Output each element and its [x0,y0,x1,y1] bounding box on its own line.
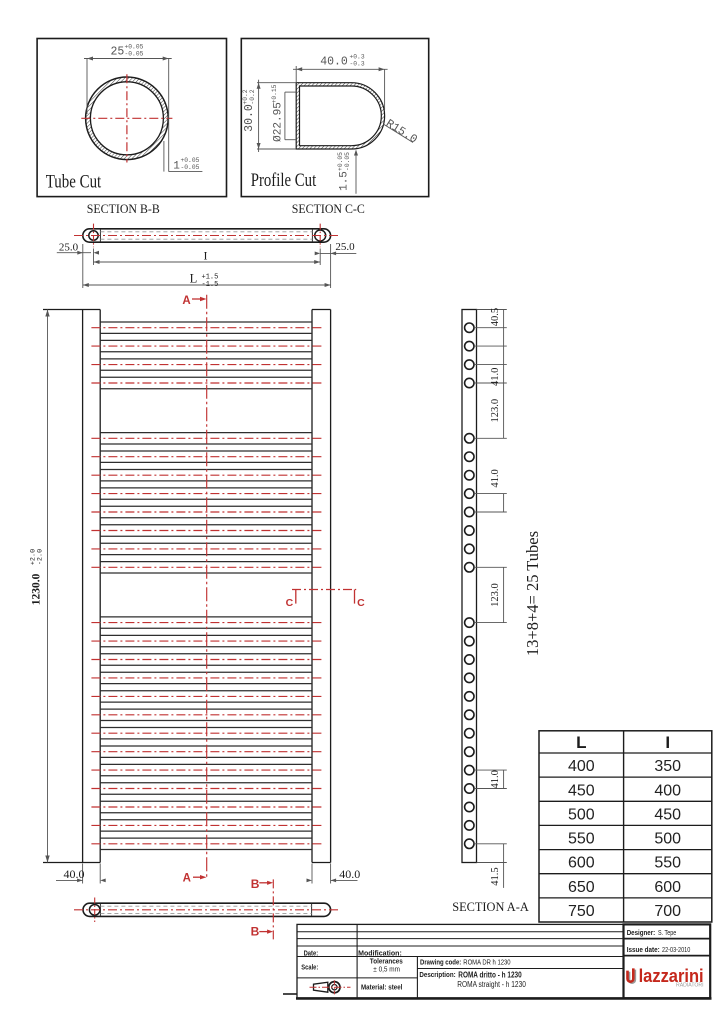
svg-text:700: 700 [654,903,681,920]
svg-text:ROMA DR h 1230: ROMA DR h 1230 [463,960,510,967]
svg-text:41.5: 41.5 [490,867,501,885]
svg-text:Profile Cut: Profile Cut [251,170,317,191]
svg-text:ROMA straight - h 1230: ROMA straight - h 1230 [457,980,526,989]
svg-text:25.0: 25.0 [335,241,355,253]
svg-text:123.0: 123.0 [490,399,501,423]
svg-text:Issue date:: Issue date: [627,947,660,954]
svg-text:40.0: 40.0 [339,867,360,881]
svg-text:350: 350 [654,758,681,775]
svg-text:750: 750 [568,903,595,920]
svg-text:1230.0: 1230.0 [31,573,43,605]
svg-text:-2.0: -2.0 [37,549,45,565]
svg-text:41.0: 41.0 [490,469,501,487]
svg-text:650: 650 [568,879,595,896]
svg-text:41.0: 41.0 [490,368,501,386]
svg-text:40.5: 40.5 [490,308,501,326]
svg-text:L: L [190,272,198,286]
svg-text:550: 550 [654,855,681,872]
svg-text:+0.05: +0.05 [125,44,144,51]
svg-text:-1.5: -1.5 [202,281,219,289]
svg-text:SECTION A-A: SECTION A-A [452,900,529,914]
svg-text:450: 450 [654,806,681,823]
svg-text:C: C [286,597,294,609]
svg-text:B: B [251,924,260,938]
svg-text:-0.05: -0.05 [125,51,144,58]
svg-text:1.5: 1.5 [339,171,351,191]
svg-text:Ø22.95: Ø22.95 [273,102,285,142]
svg-text:A: A [183,873,191,885]
svg-text:ROMA dritto - h 1230: ROMA dritto - h 1230 [458,970,522,979]
svg-text:RADIATORI: RADIATORI [676,983,704,989]
svg-text:400: 400 [654,782,681,799]
svg-text:-0.05: -0.05 [344,152,351,171]
svg-text:25.0: 25.0 [59,242,79,254]
svg-text:L: L [576,733,586,752]
svg-text:Description:: Description: [419,972,455,979]
svg-text:SECTION B-B: SECTION B-B [87,201,160,216]
svg-text:C: C [357,597,365,609]
svg-text:25: 25 [111,46,125,59]
svg-text:123.0: 123.0 [490,583,501,607]
svg-text:± 0,5 mm: ± 0,5 mm [373,965,400,974]
svg-text:13+8+4= 25 Tubes: 13+8+4= 25 Tubes [523,531,542,656]
svg-text:Scale:: Scale: [301,965,318,972]
svg-text:600: 600 [568,855,595,872]
svg-text:40.0: 40.0 [64,867,85,881]
svg-text:550: 550 [568,831,595,848]
svg-text:Drawing code:: Drawing code: [420,960,461,967]
svg-text:A: A [182,295,190,307]
svg-text:Material: steel: Material: steel [361,984,402,991]
svg-text:600: 600 [654,879,681,896]
svg-text:B: B [251,877,260,891]
svg-text:1: 1 [173,161,180,173]
svg-text:S. Tepe: S. Tepe [658,930,676,937]
svg-text:Designer:: Designer: [627,930,656,937]
svg-text:30.0: 30.0 [243,104,256,132]
svg-text:-0.2: -0.2 [249,89,256,104]
svg-text:500: 500 [654,831,681,848]
svg-text:Date:: Date: [304,951,319,958]
svg-text:+0.2: +0.2 [242,89,249,104]
svg-text:400: 400 [568,758,595,775]
svg-text:I: I [665,733,670,752]
svg-text:500: 500 [568,806,595,823]
svg-text:Tube Cut: Tube Cut [46,172,102,193]
svg-text:+0.05: +0.05 [337,152,344,171]
svg-text:+0.15: +0.15 [271,84,278,103]
svg-text:SECTION C-C: SECTION C-C [292,201,365,216]
svg-text:40.0: 40.0 [320,56,348,69]
svg-text:22-03-2010: 22-03-2010 [662,947,690,954]
svg-text:-0.3: -0.3 [350,61,365,68]
svg-text:-0.05: -0.05 [181,164,200,171]
svg-text:+0.05: +0.05 [181,157,200,164]
svg-text:I: I [204,249,208,263]
svg-text:+0.3: +0.3 [350,54,365,61]
svg-text:41.0: 41.0 [490,770,501,788]
svg-text:450: 450 [568,782,595,799]
